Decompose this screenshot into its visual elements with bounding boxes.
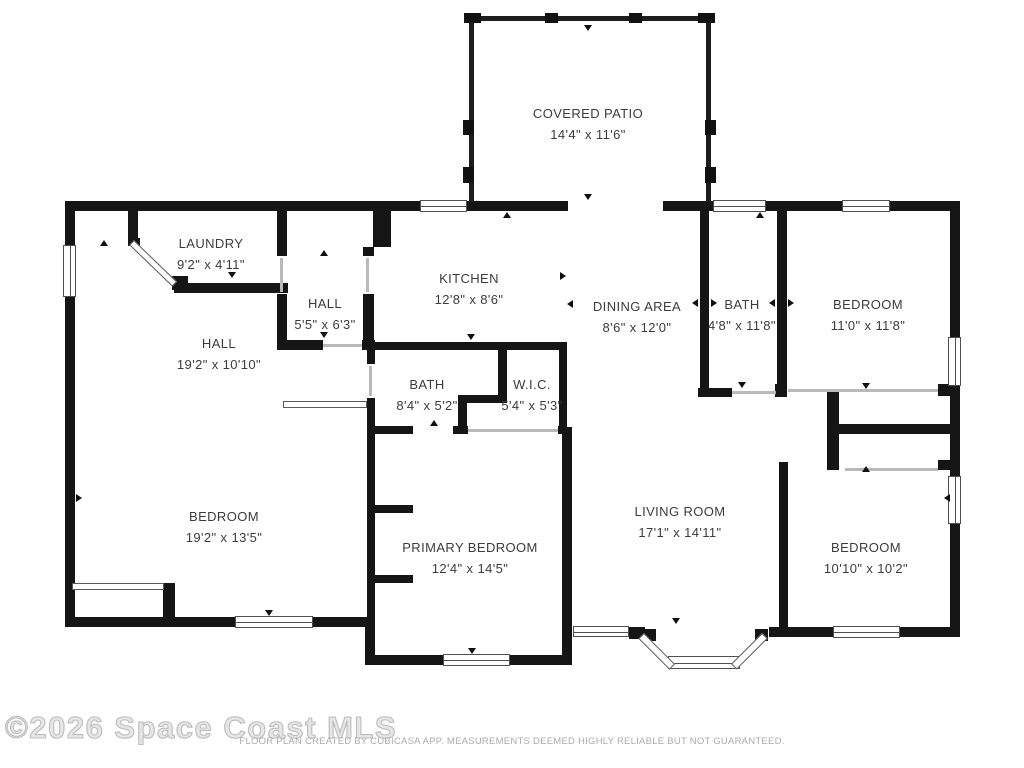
door-opening [638, 633, 675, 670]
wall-segment [769, 627, 786, 637]
wall-segment [698, 388, 732, 397]
wall-segment [367, 398, 375, 428]
door-direction-marker [467, 334, 475, 340]
wall-segment [950, 523, 960, 637]
wall-segment [458, 403, 467, 428]
room-name: BATH [708, 294, 776, 315]
wall-segment [365, 655, 443, 665]
wall-segment [367, 350, 375, 364]
footer-disclaimer: FLOOR PLAN CREATED BY CUBICASA APP. MEAS… [0, 736, 1024, 747]
window [668, 656, 740, 669]
wall-segment [777, 210, 787, 390]
door-direction-marker [738, 382, 746, 388]
door-direction-marker [76, 494, 82, 502]
room-name: HALL [294, 293, 355, 314]
window [842, 200, 890, 212]
wall-segment [277, 247, 287, 256]
wall-segment [373, 201, 391, 247]
door-opening [72, 583, 164, 590]
wall-segment [65, 201, 420, 211]
window [420, 200, 467, 212]
wall-segment [174, 283, 288, 293]
room-name: COVERED PATIO [533, 103, 643, 124]
room-dims: 4'8" x 11'8" [708, 315, 776, 336]
patio-post [705, 167, 716, 183]
room-label-bedroom-top-right: BEDROOM 11'0" x 11'8" [831, 294, 906, 336]
room-dims: 5'5" x 6'3" [294, 314, 355, 335]
door-direction-marker [560, 272, 566, 280]
window [713, 200, 766, 212]
door-direction-marker [320, 250, 328, 256]
opening-line [468, 429, 558, 432]
wall-segment [65, 617, 235, 627]
door-opening [731, 633, 768, 670]
opening-line [732, 391, 776, 394]
door-direction-marker [584, 25, 592, 31]
room-name: PRIMARY BEDROOM [402, 537, 538, 558]
patio-post [463, 120, 474, 135]
room-label-hall-main: HALL 19'2" x 10'10" [177, 333, 261, 375]
room-label-bath-right: BATH 4'8" x 11'8" [708, 294, 776, 336]
room-dims: 12'4" x 14'5" [402, 558, 538, 579]
room-dims: 8'4" x 5'2" [396, 395, 457, 416]
room-label-bedroom-bottom-right: BEDROOM 10'10" x 10'2" [824, 537, 908, 579]
wall-segment [65, 201, 75, 245]
patio-post [463, 167, 474, 183]
door-direction-marker [265, 610, 273, 616]
wall-segment [277, 340, 323, 350]
window [573, 626, 629, 637]
wall-segment [786, 627, 833, 637]
room-label-primary-bedroom: PRIMARY BEDROOM 12'4" x 14'5" [402, 537, 538, 579]
wall-segment [363, 247, 374, 256]
door-direction-marker [567, 300, 573, 308]
room-name: LIVING ROOM [634, 501, 725, 522]
wall-segment [900, 627, 960, 637]
room-name: BEDROOM [824, 537, 908, 558]
door-direction-marker [692, 299, 698, 307]
room-dims: 17'1" x 14'11" [634, 522, 725, 543]
door-direction-marker [503, 212, 511, 218]
room-dims: 12'8" x 8'6" [435, 289, 504, 310]
wall-segment [367, 505, 413, 513]
door-direction-marker [862, 466, 870, 472]
patio-post [629, 13, 642, 23]
door-direction-marker [862, 383, 870, 389]
room-label-dining-area: DINING AREA 8'6" x 12'0" [593, 296, 681, 338]
opening-line [369, 366, 372, 396]
room-name: BEDROOM [831, 294, 906, 315]
patio-post [698, 13, 715, 23]
door-direction-marker [788, 299, 794, 307]
window [833, 626, 900, 638]
window [235, 616, 313, 628]
wall-segment [65, 297, 75, 627]
door-direction-marker [756, 212, 764, 218]
room-dims: 8'6" x 12'0" [593, 317, 681, 338]
wall-segment [277, 201, 287, 247]
window [443, 654, 510, 666]
room-label-kitchen: KITCHEN 12'8" x 8'6" [435, 268, 504, 310]
wall-segment [163, 583, 175, 627]
wall-segment [458, 395, 507, 403]
room-dims: 5'4" x 5'3" [501, 395, 562, 416]
wall-segment [467, 201, 568, 211]
wall-segment [950, 201, 960, 338]
door-direction-marker [430, 420, 438, 426]
room-dims: 14'4" x 11'6" [533, 124, 643, 145]
window [63, 245, 76, 297]
room-label-laundry: LAUNDRY 9'2" x 4'11" [177, 233, 245, 275]
wall-segment [367, 342, 567, 350]
door-direction-marker [468, 648, 476, 654]
floor-plan: COVERED PATIO 14'4" x 11'6" LAUNDRY 9'2"… [0, 0, 1024, 768]
room-dims: 9'2" x 4'11" [177, 254, 245, 275]
room-label-covered-patio: COVERED PATIO 14'4" x 11'6" [533, 103, 643, 145]
room-label-hall-small: HALL 5'5" x 6'3" [294, 293, 355, 335]
door-opening [283, 401, 367, 408]
room-dims: 11'0" x 11'8" [831, 315, 906, 336]
room-label-bath-center: BATH 8'4" x 5'2" [396, 374, 457, 416]
wall-segment [562, 427, 572, 665]
opening-line [788, 389, 938, 392]
door-direction-marker [944, 494, 950, 502]
wall-segment [453, 426, 468, 434]
patio-post [705, 120, 716, 135]
room-name: DINING AREA [593, 296, 681, 317]
patio-wall-segment [469, 16, 711, 21]
room-name: BEDROOM [186, 506, 263, 527]
room-dims: 19'2" x 13'5" [186, 527, 263, 548]
room-dims: 10'10" x 10'2" [824, 558, 908, 579]
room-label-bedroom-left: BEDROOM 19'2" x 13'5" [186, 506, 263, 548]
room-name: KITCHEN [435, 268, 504, 289]
wall-segment [938, 460, 952, 470]
wall-segment [128, 201, 138, 243]
window [948, 337, 961, 386]
wall-segment [779, 464, 788, 627]
patio-post [464, 13, 481, 23]
opening-line [280, 258, 283, 292]
door-direction-marker [672, 618, 680, 624]
opening-line [366, 258, 369, 292]
opening-line [323, 344, 362, 347]
opening-line [845, 468, 938, 471]
door-direction-marker [584, 194, 592, 200]
wall-segment [367, 434, 375, 665]
room-label-wic: W.I.C. 5'4" x 5'3" [501, 374, 562, 416]
room-label-living-room: LIVING ROOM 17'1" x 14'11" [634, 501, 725, 543]
wall-segment [367, 426, 413, 434]
door-opening [129, 240, 177, 287]
room-name: BATH [396, 374, 457, 395]
room-name: LAUNDRY [177, 233, 245, 254]
door-direction-marker [100, 240, 108, 246]
patio-post [545, 13, 558, 23]
room-name: W.I.C. [501, 374, 562, 395]
room-name: HALL [177, 333, 261, 354]
room-dims: 19'2" x 10'10" [177, 354, 261, 375]
wall-segment [837, 424, 952, 434]
